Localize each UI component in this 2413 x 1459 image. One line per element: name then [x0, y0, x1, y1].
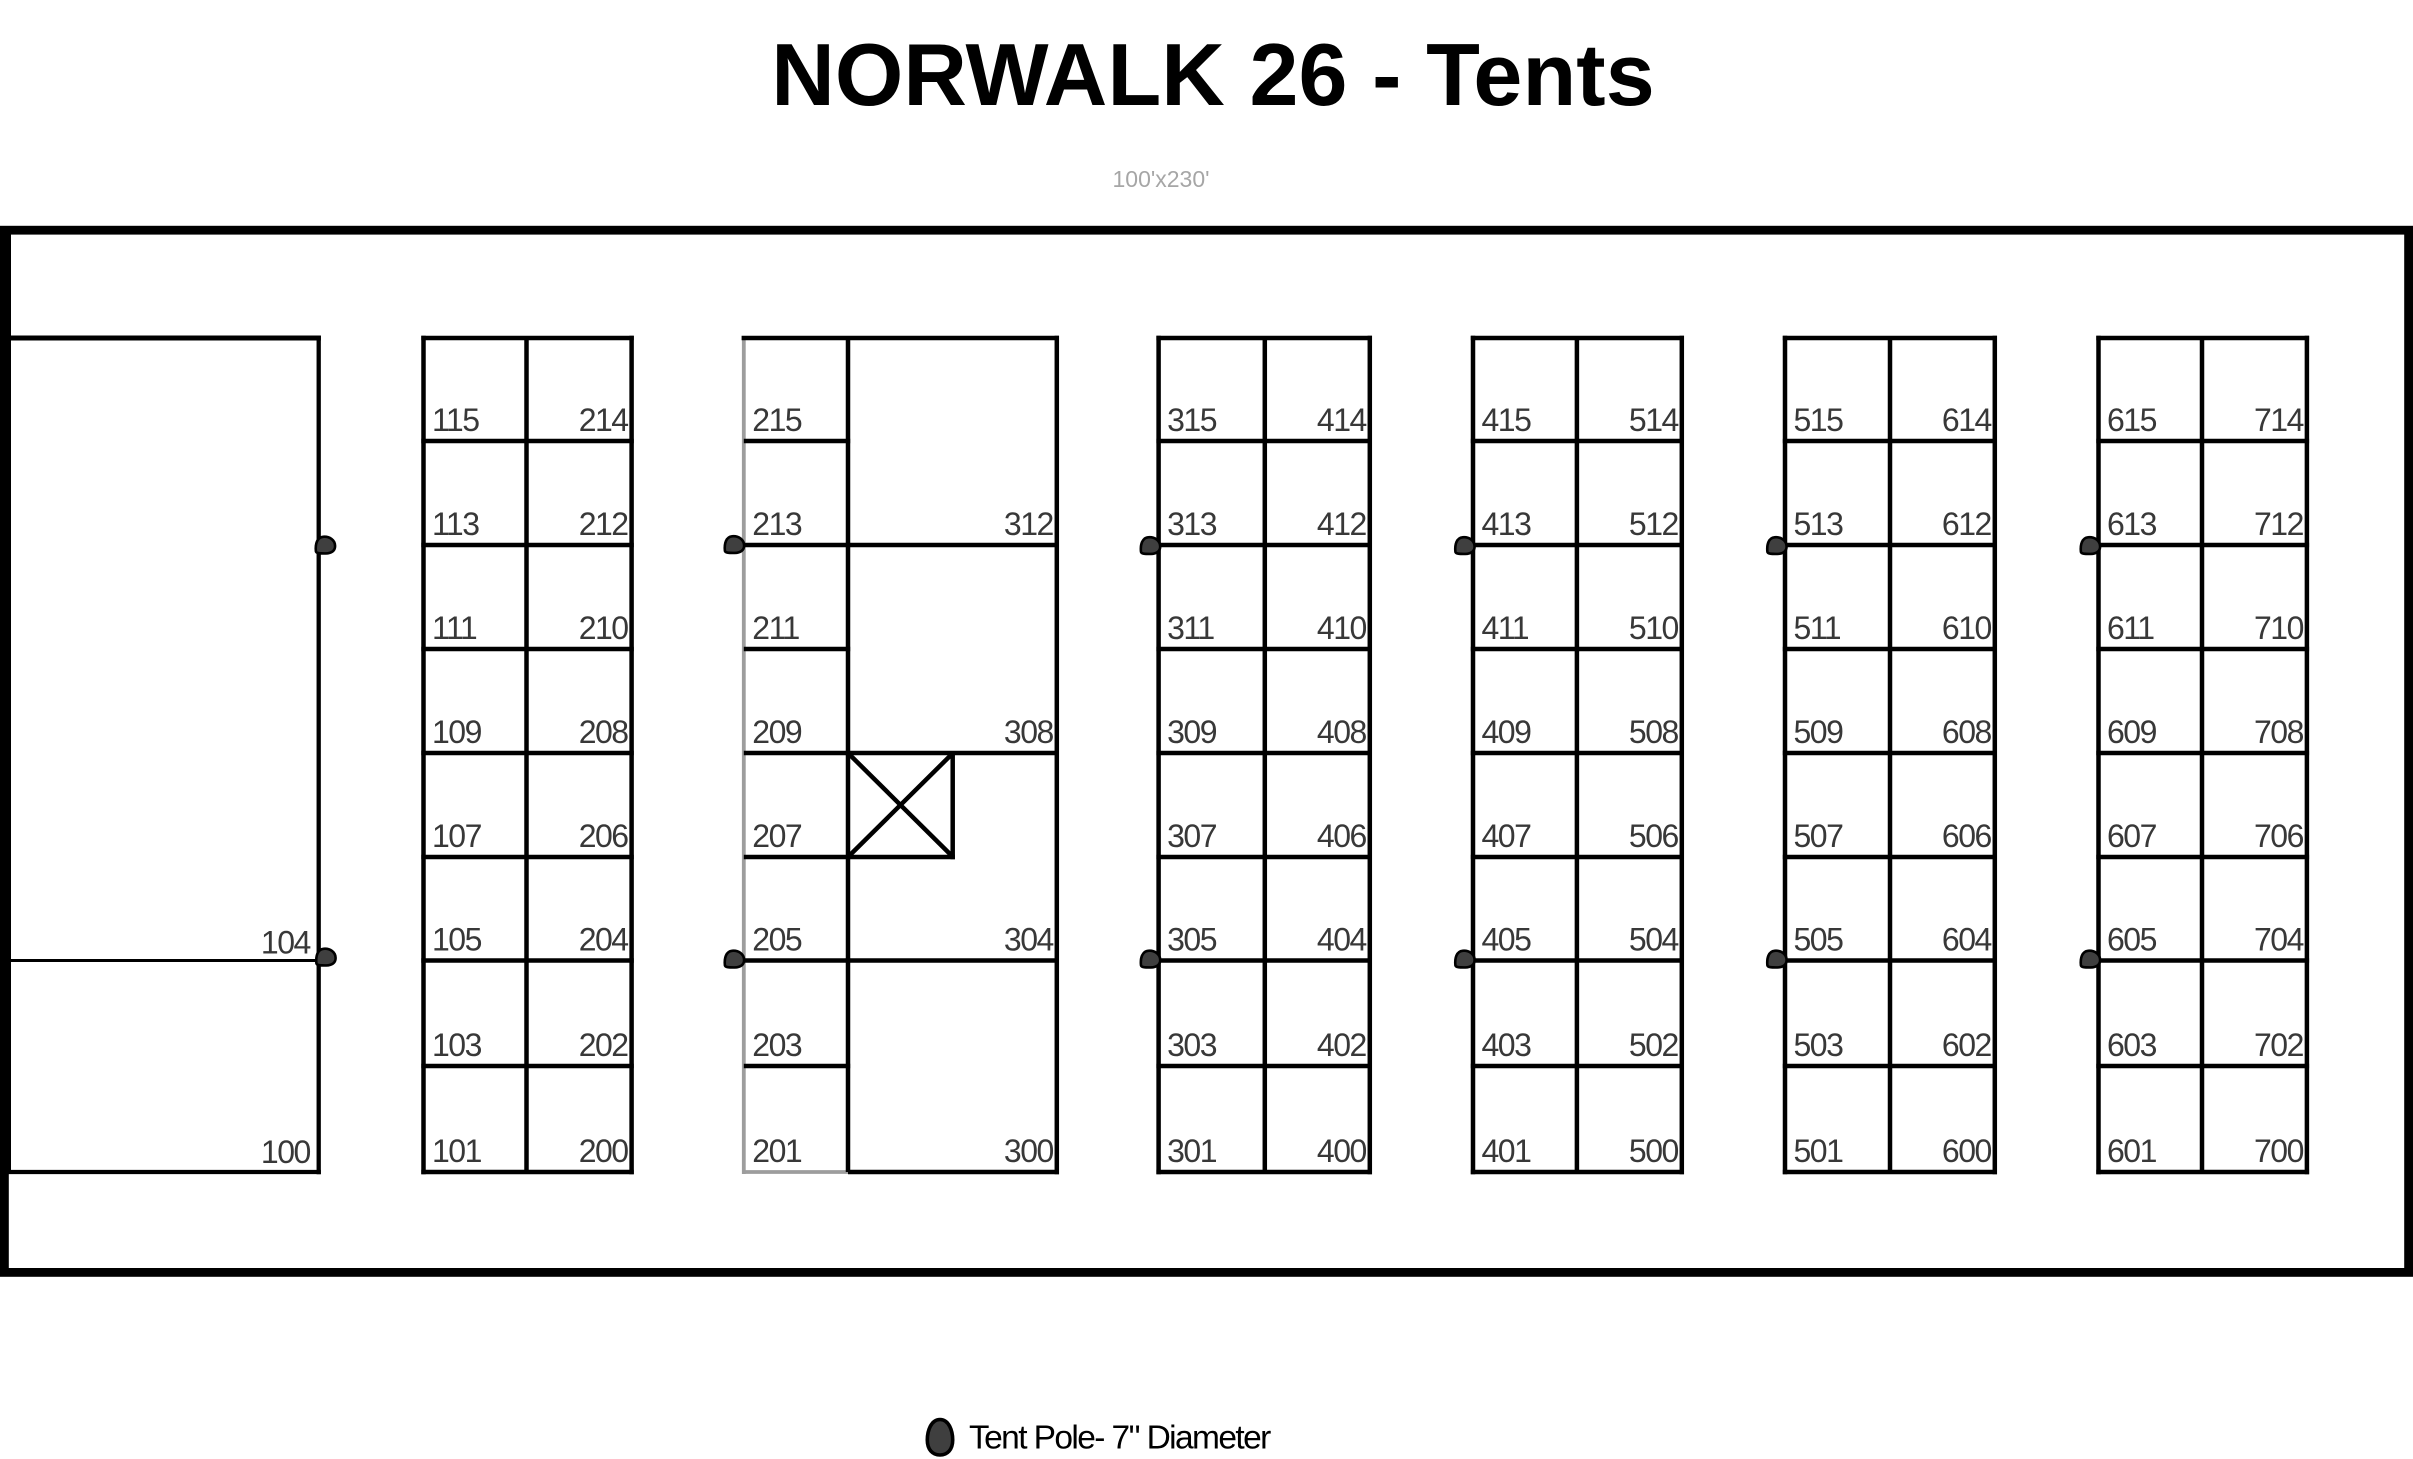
svg-text:712: 712 — [2254, 506, 2304, 542]
svg-text:215: 215 — [752, 402, 802, 438]
svg-text:610: 610 — [1942, 610, 1992, 646]
svg-text:212: 212 — [579, 506, 629, 542]
svg-text:210: 210 — [579, 610, 629, 646]
svg-text:502: 502 — [1629, 1027, 1679, 1063]
svg-text:512: 512 — [1629, 506, 1679, 542]
svg-text:612: 612 — [1942, 506, 1992, 542]
svg-text:710: 710 — [2254, 610, 2304, 646]
svg-text:206: 206 — [579, 818, 629, 854]
svg-text:706: 706 — [2254, 818, 2304, 854]
svg-text:104: 104 — [261, 925, 311, 961]
svg-text:300: 300 — [1004, 1133, 1054, 1169]
svg-text:204: 204 — [579, 922, 629, 958]
svg-text:401: 401 — [1482, 1133, 1532, 1169]
svg-text:608: 608 — [1942, 714, 1992, 750]
svg-text:407: 407 — [1482, 818, 1532, 854]
svg-text:412: 412 — [1317, 506, 1367, 542]
svg-text:107: 107 — [432, 818, 482, 854]
svg-text:208: 208 — [579, 714, 629, 750]
svg-text:614: 614 — [1942, 402, 1992, 438]
svg-text:NORWALK 26 - Tents: NORWALK 26 - Tents — [771, 25, 1655, 124]
svg-text:609: 609 — [2107, 714, 2157, 750]
svg-text:201: 201 — [752, 1133, 802, 1169]
svg-text:510: 510 — [1629, 610, 1679, 646]
svg-text:507: 507 — [1794, 818, 1844, 854]
svg-text:504: 504 — [1629, 922, 1679, 958]
svg-text:514: 514 — [1629, 402, 1679, 438]
svg-text:611: 611 — [2107, 610, 2154, 646]
svg-text:205: 205 — [752, 922, 802, 958]
svg-text:702: 702 — [2254, 1027, 2304, 1063]
svg-text:308: 308 — [1004, 714, 1054, 750]
svg-text:202: 202 — [579, 1027, 629, 1063]
svg-text:305: 305 — [1167, 922, 1217, 958]
svg-text:400: 400 — [1317, 1133, 1367, 1169]
svg-text:209: 209 — [752, 714, 802, 750]
svg-text:402: 402 — [1317, 1027, 1367, 1063]
svg-text:613: 613 — [2107, 506, 2157, 542]
svg-text:100: 100 — [261, 1134, 311, 1170]
svg-text:307: 307 — [1167, 818, 1217, 854]
svg-text:312: 312 — [1004, 506, 1054, 542]
svg-text:115: 115 — [432, 402, 479, 438]
svg-text:404: 404 — [1317, 922, 1367, 958]
svg-text:301: 301 — [1167, 1133, 1217, 1169]
svg-text:602: 602 — [1942, 1027, 1992, 1063]
svg-text:Tent Pole- 7" Diameter: Tent Pole- 7" Diameter — [969, 1420, 1271, 1457]
svg-text:606: 606 — [1942, 818, 1992, 854]
svg-text:410: 410 — [1317, 610, 1367, 646]
svg-text:511: 511 — [1794, 610, 1841, 646]
svg-text:103: 103 — [432, 1027, 482, 1063]
svg-text:415: 415 — [1482, 402, 1532, 438]
svg-text:505: 505 — [1794, 922, 1844, 958]
svg-text:601: 601 — [2107, 1133, 2157, 1169]
svg-text:309: 309 — [1167, 714, 1217, 750]
svg-text:513: 513 — [1794, 506, 1844, 542]
svg-text:100'x230': 100'x230' — [1112, 166, 1209, 192]
svg-text:105: 105 — [432, 922, 482, 958]
svg-text:406: 406 — [1317, 818, 1367, 854]
svg-text:605: 605 — [2107, 922, 2157, 958]
svg-text:714: 714 — [2254, 402, 2304, 438]
svg-text:211: 211 — [752, 610, 799, 646]
svg-text:607: 607 — [2107, 818, 2157, 854]
svg-text:603: 603 — [2107, 1027, 2157, 1063]
svg-text:500: 500 — [1629, 1133, 1679, 1169]
svg-text:515: 515 — [1794, 402, 1844, 438]
svg-text:600: 600 — [1942, 1133, 1992, 1169]
svg-text:604: 604 — [1942, 922, 1992, 958]
svg-text:109: 109 — [432, 714, 482, 750]
svg-text:304: 304 — [1004, 922, 1054, 958]
svg-text:101: 101 — [432, 1133, 482, 1169]
svg-text:509: 509 — [1794, 714, 1844, 750]
svg-text:506: 506 — [1629, 818, 1679, 854]
svg-text:409: 409 — [1482, 714, 1532, 750]
svg-text:403: 403 — [1482, 1027, 1532, 1063]
svg-text:700: 700 — [2254, 1133, 2304, 1169]
svg-text:311: 311 — [1167, 610, 1214, 646]
svg-text:213: 213 — [752, 506, 802, 542]
svg-text:113: 113 — [432, 506, 479, 542]
svg-text:411: 411 — [1482, 610, 1529, 646]
svg-text:615: 615 — [2107, 402, 2157, 438]
svg-text:414: 414 — [1317, 402, 1367, 438]
svg-text:203: 203 — [752, 1027, 802, 1063]
svg-text:313: 313 — [1167, 506, 1217, 542]
svg-text:508: 508 — [1629, 714, 1679, 750]
svg-text:503: 503 — [1794, 1027, 1844, 1063]
svg-text:111: 111 — [432, 610, 477, 646]
svg-text:708: 708 — [2254, 714, 2304, 750]
svg-text:207: 207 — [752, 818, 802, 854]
svg-text:501: 501 — [1794, 1133, 1844, 1169]
svg-text:413: 413 — [1482, 506, 1532, 542]
svg-text:408: 408 — [1317, 714, 1367, 750]
svg-text:214: 214 — [579, 402, 629, 438]
svg-text:704: 704 — [2254, 922, 2304, 958]
svg-text:200: 200 — [579, 1133, 629, 1169]
svg-text:303: 303 — [1167, 1027, 1217, 1063]
svg-text:405: 405 — [1482, 922, 1532, 958]
svg-text:315: 315 — [1167, 402, 1217, 438]
